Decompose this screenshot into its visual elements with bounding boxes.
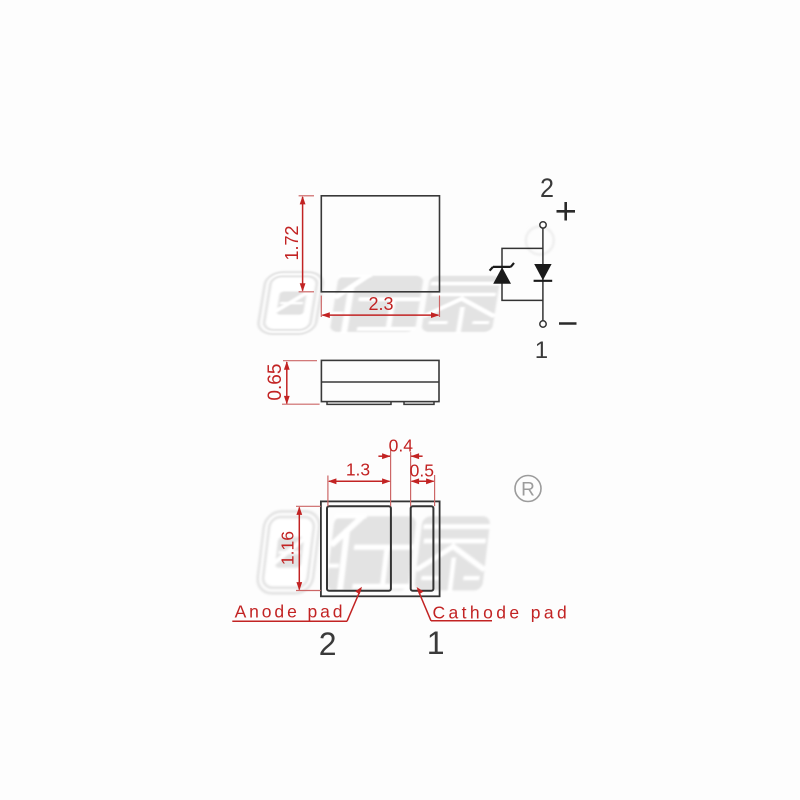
svg-text:1: 1 [427,625,445,661]
svg-text:2: 2 [319,626,337,662]
svg-text:1.72: 1.72 [282,225,302,260]
svg-text:1.3: 1.3 [346,459,370,479]
svg-text:1: 1 [535,337,548,364]
svg-text:1.16: 1.16 [278,531,298,565]
svg-text:0.5: 0.5 [410,461,434,481]
svg-text:R: R [521,479,535,500]
svg-text:2: 2 [540,173,554,203]
svg-text:0.65: 0.65 [265,364,286,401]
svg-text:Cathode pad: Cathode pad [433,603,571,623]
svg-text:0.4: 0.4 [389,435,414,455]
svg-text:Anode pad: Anode pad [235,602,346,622]
svg-text:2.3: 2.3 [368,294,393,314]
